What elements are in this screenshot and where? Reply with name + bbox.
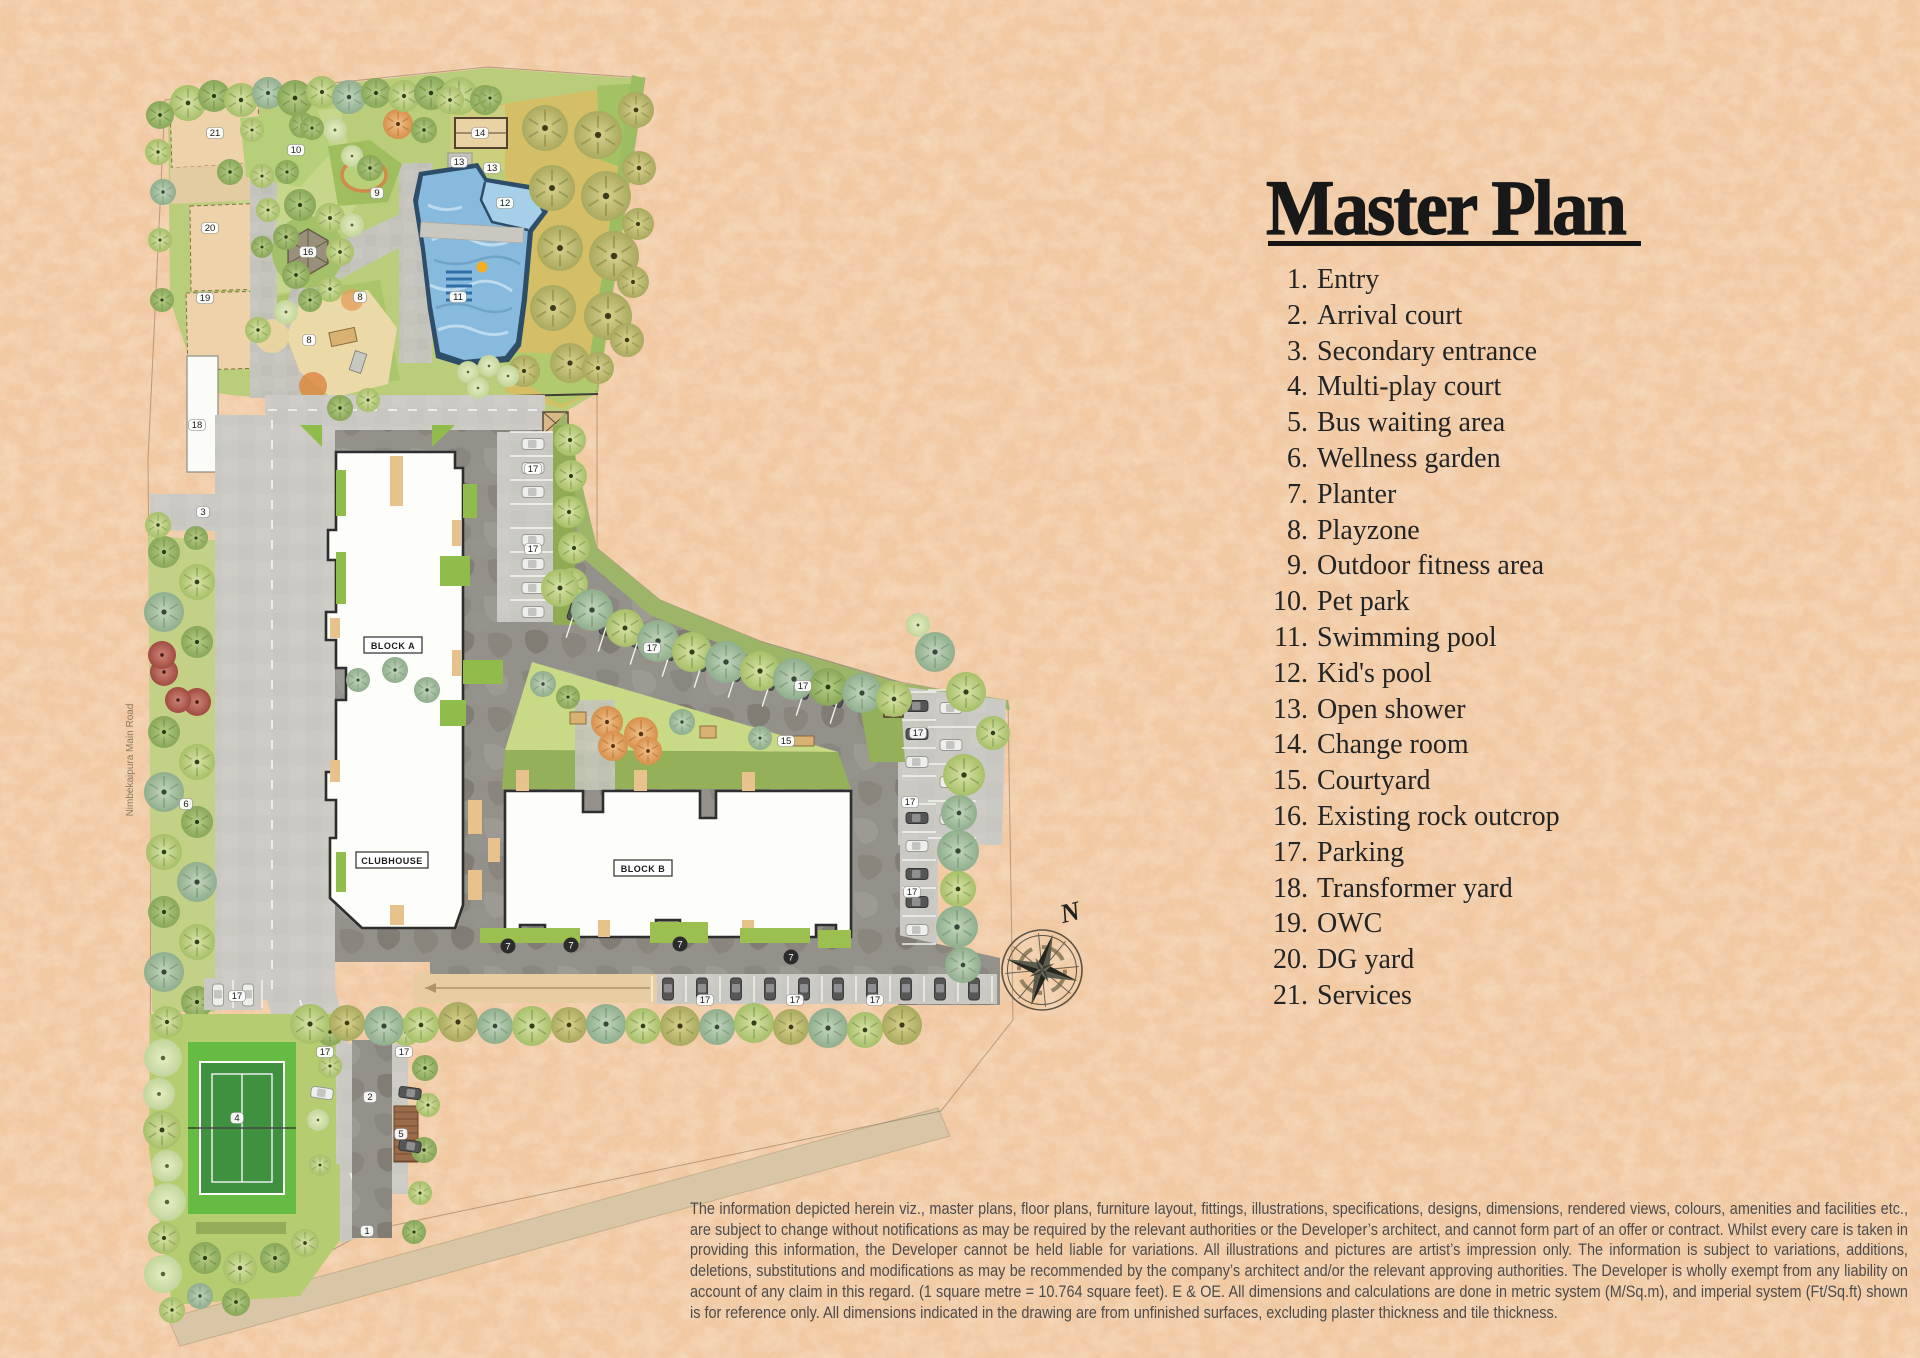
svg-text:17: 17 xyxy=(700,995,711,1006)
svg-text:20: 20 xyxy=(205,223,216,234)
svg-text:17: 17 xyxy=(870,995,881,1006)
svg-text:7: 7 xyxy=(677,939,682,950)
svg-text:2: 2 xyxy=(367,1092,372,1103)
svg-text:3: 3 xyxy=(200,507,205,518)
svg-text:1: 1 xyxy=(364,1226,369,1237)
svg-text:17: 17 xyxy=(528,464,539,475)
svg-text:19: 19 xyxy=(200,293,211,304)
svg-text:17: 17 xyxy=(798,681,809,692)
svg-text:BLOCK B: BLOCK B xyxy=(621,864,666,874)
svg-text:7: 7 xyxy=(788,952,793,963)
svg-text:Nimbekaipura Main Road: Nimbekaipura Main Road xyxy=(125,704,136,817)
svg-text:CLUBHOUSE: CLUBHOUSE xyxy=(361,856,423,866)
svg-text:4: 4 xyxy=(234,1113,239,1124)
svg-text:17: 17 xyxy=(647,643,658,654)
svg-text:17: 17 xyxy=(913,728,924,739)
svg-text:15: 15 xyxy=(781,736,792,747)
svg-text:10: 10 xyxy=(291,145,302,156)
svg-text:9: 9 xyxy=(374,188,379,199)
svg-text:12: 12 xyxy=(500,198,511,209)
svg-text:8: 8 xyxy=(357,292,362,303)
svg-text:17: 17 xyxy=(232,991,243,1002)
svg-text:11: 11 xyxy=(453,292,463,303)
svg-text:17: 17 xyxy=(905,797,916,808)
svg-text:8: 8 xyxy=(306,335,311,346)
svg-text:17: 17 xyxy=(790,995,801,1006)
svg-text:BLOCK A: BLOCK A xyxy=(371,641,415,651)
svg-text:7: 7 xyxy=(568,940,573,951)
svg-text:18: 18 xyxy=(192,420,203,431)
svg-text:13: 13 xyxy=(487,163,498,174)
svg-text:17: 17 xyxy=(399,1047,410,1058)
svg-text:13: 13 xyxy=(454,157,465,168)
svg-text:17: 17 xyxy=(528,544,539,555)
svg-text:21: 21 xyxy=(210,128,221,139)
svg-text:7: 7 xyxy=(505,941,510,952)
svg-text:17: 17 xyxy=(907,887,918,898)
svg-text:16: 16 xyxy=(303,247,314,258)
svg-text:14: 14 xyxy=(475,128,486,139)
svg-text:5: 5 xyxy=(398,1129,403,1140)
svg-text:6: 6 xyxy=(183,799,188,810)
svg-text:17: 17 xyxy=(320,1047,331,1058)
